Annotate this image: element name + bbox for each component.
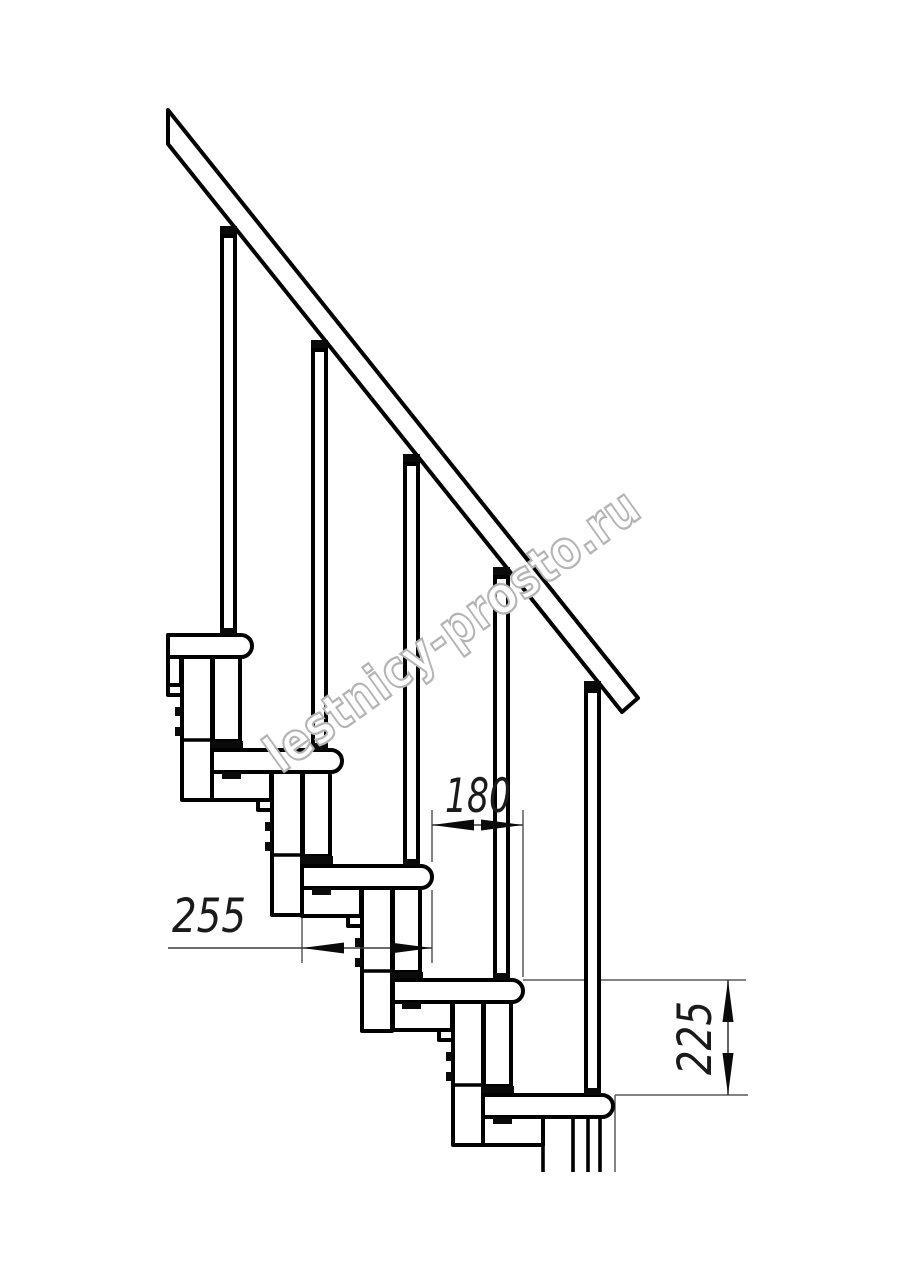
module-1-flange — [168, 685, 182, 695]
tread-3-bolt — [312, 888, 331, 895]
module-2-bolt-head-1 — [265, 822, 272, 831]
module-4-column-plate — [453, 1002, 483, 1145]
module-4-downtube — [484, 1002, 511, 1086]
tread-5-bolt — [493, 1117, 512, 1124]
staircase-technical-drawing: 255 180 225 lestnicy-prosto.ru — [0, 0, 914, 1280]
module-5-seat-box — [483, 1117, 543, 1145]
module-5-column-lines — [543, 1117, 600, 1172]
baluster-1-shaft — [222, 236, 235, 635]
tread-4 — [393, 980, 523, 1002]
module-4-bolt-head-1 — [446, 1052, 453, 1061]
tread-5 — [483, 1095, 613, 1117]
dim-225-arrow-up — [723, 980, 734, 1022]
dim-255-label: 255 — [172, 889, 246, 944]
module-1-bolt-head-2 — [175, 727, 182, 736]
dimension-180: 180 — [432, 769, 523, 831]
dim-180-label: 180 — [445, 769, 511, 824]
tread-2-bolt — [222, 772, 241, 779]
module-2-bolt-head-2 — [265, 842, 272, 851]
module-3-column-plate — [362, 888, 392, 1031]
tread-1 — [168, 635, 252, 657]
baluster-5-bottom-cap — [584, 1088, 601, 1095]
tread-4-bolt — [402, 1002, 421, 1009]
baluster-3-bottom-cap — [403, 859, 420, 866]
module-4-seat-box — [393, 1002, 452, 1030]
module-4-flange — [439, 1030, 453, 1040]
module-1-bolt-head-1 — [175, 707, 182, 716]
baluster-5-shaft — [586, 691, 599, 1095]
module-1-seat-box — [168, 657, 181, 687]
baluster-5 — [584, 681, 601, 1095]
module-2-flange — [258, 800, 272, 810]
dim-225-arrow-down — [723, 1053, 734, 1095]
module-1-column-plate — [182, 657, 212, 800]
dim-225-label: 225 — [668, 1001, 723, 1075]
module-1-downtube — [213, 657, 240, 741]
dimension-225: 225 — [668, 980, 734, 1095]
technical-drawing-page: 255 180 225 lestnicy-prosto.ru — [0, 0, 914, 1280]
module-2-downtube — [303, 772, 330, 856]
module-2-column-plate — [272, 772, 302, 915]
module-3-bolt-head-1 — [355, 938, 362, 947]
module-2-tube-foot — [300, 856, 333, 865]
baluster-4-bottom-cap — [493, 973, 510, 980]
module-2-seat-box — [212, 772, 271, 800]
baluster-1 — [220, 226, 237, 635]
stair-module-5 — [483, 1117, 600, 1172]
module-3-bolt-head-2 — [355, 958, 362, 967]
baluster-1-bottom-cap — [220, 628, 237, 635]
module-4-bolt-head-2 — [446, 1072, 453, 1081]
dim-255-arrow-left — [302, 943, 344, 954]
module-3-seat-box — [302, 888, 361, 916]
module-3-downtube — [393, 888, 420, 972]
module-3-flange — [348, 916, 362, 926]
tread-3 — [302, 866, 432, 888]
